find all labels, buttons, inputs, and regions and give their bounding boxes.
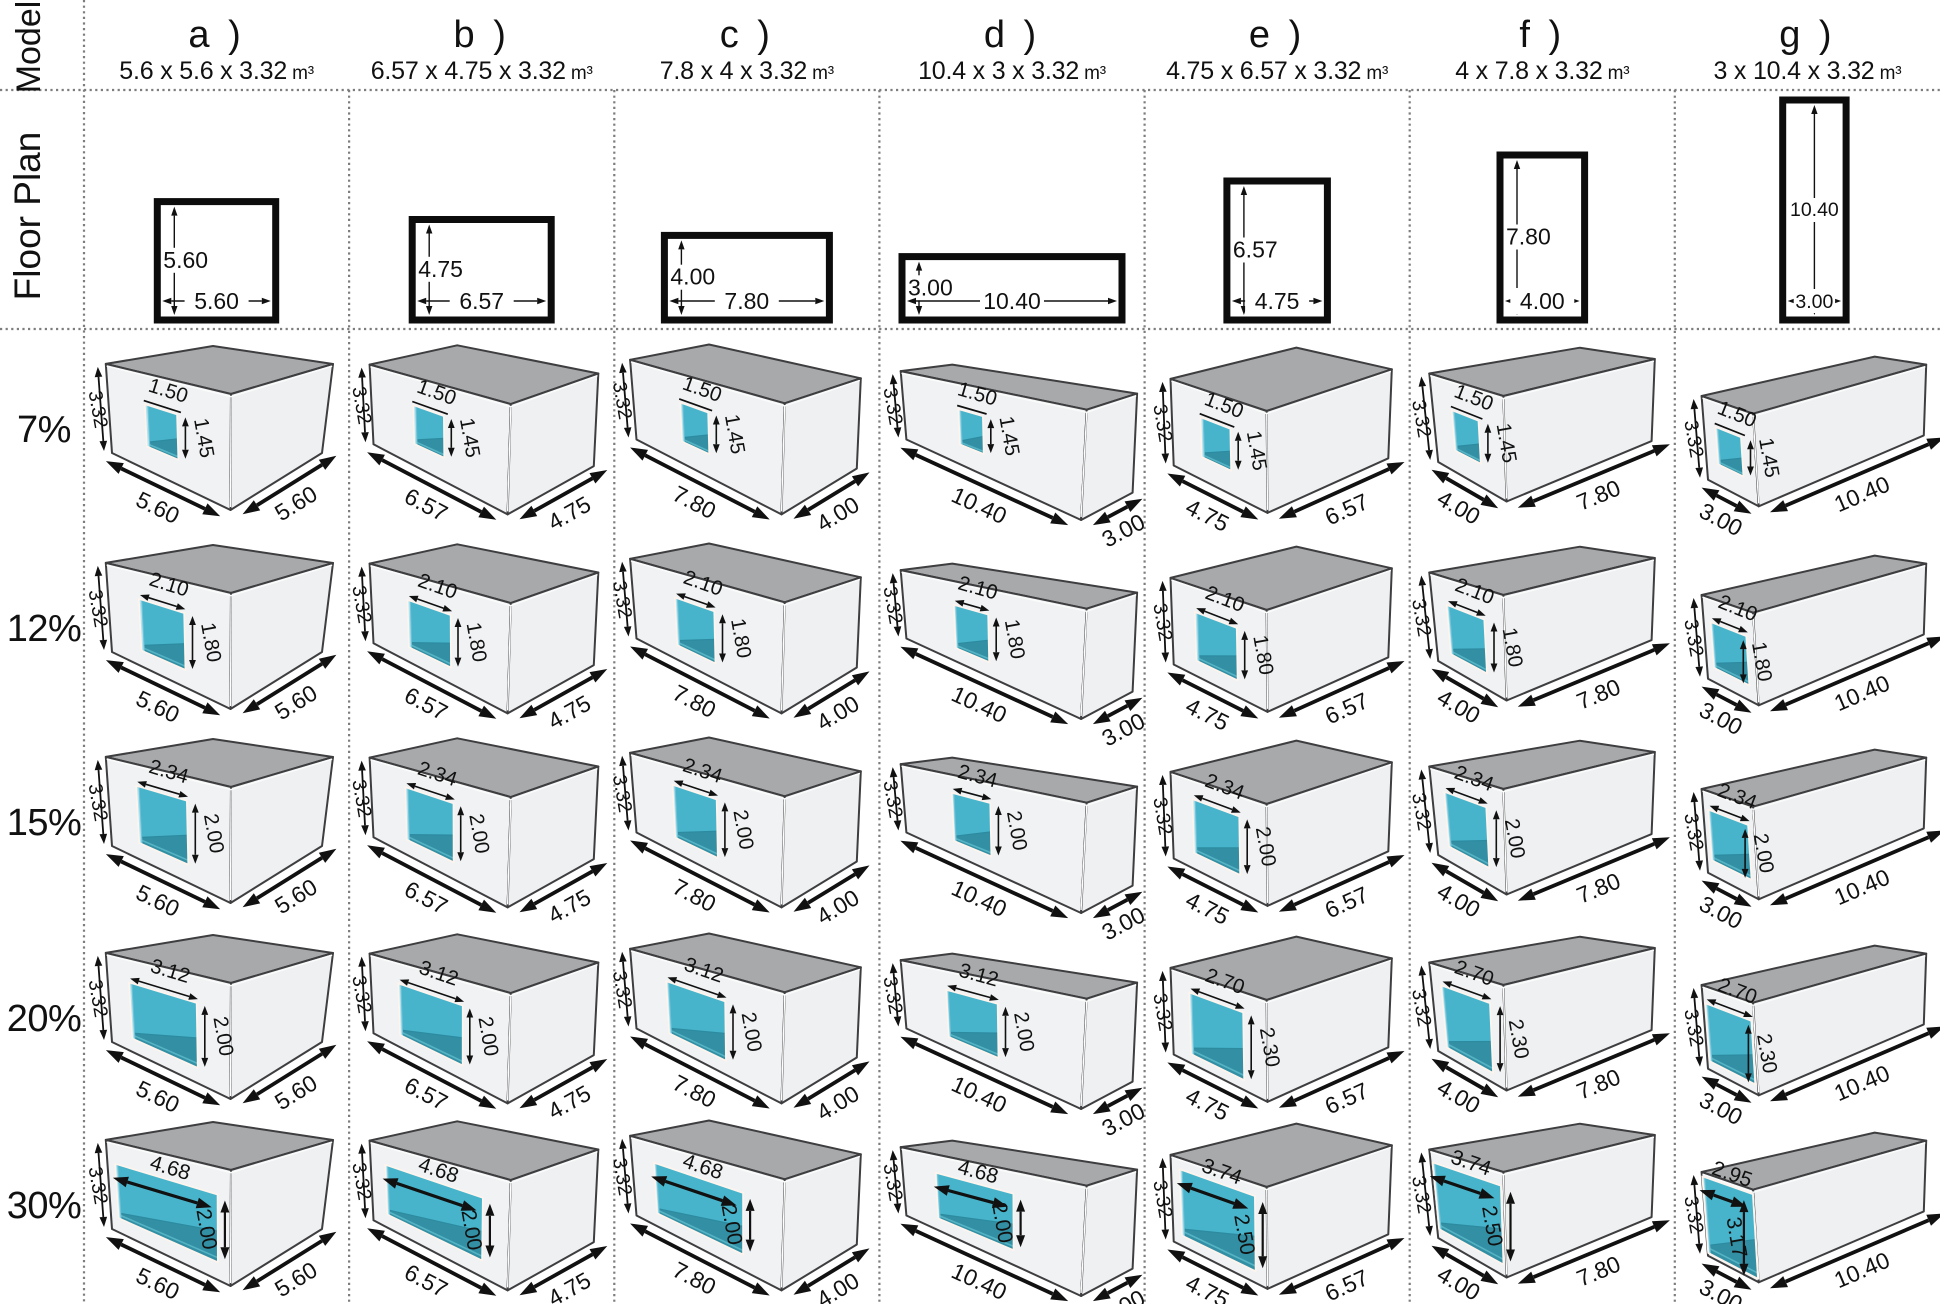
svg-text:a ): a ) <box>188 14 244 56</box>
svg-text:Model: Model <box>10 1 48 94</box>
svg-text:g ): g ) <box>1779 14 1835 56</box>
svg-text:7.80: 7.80 <box>724 288 769 314</box>
svg-text:7%: 7% <box>17 409 71 451</box>
svg-text:20%: 20% <box>7 998 82 1040</box>
svg-text:4.00: 4.00 <box>670 264 715 290</box>
svg-text:10.40: 10.40 <box>1790 199 1839 221</box>
svg-text:3 x 10.4 x 3.32 m³: 3 x 10.4 x 3.32 m³ <box>1713 57 1901 85</box>
svg-text:5.60: 5.60 <box>194 288 239 314</box>
svg-text:15%: 15% <box>7 802 82 844</box>
svg-text:4.00: 4.00 <box>1520 288 1565 314</box>
svg-text:12%: 12% <box>7 608 82 650</box>
svg-text:4.75: 4.75 <box>418 256 463 282</box>
svg-text:10.40: 10.40 <box>983 288 1041 314</box>
svg-text:5.60: 5.60 <box>163 247 208 273</box>
svg-text:6.57: 6.57 <box>1233 237 1278 263</box>
svg-text:6.57 x 4.75 x 3.32 m³: 6.57 x 4.75 x 3.32 m³ <box>371 57 593 85</box>
svg-text:d ): d ) <box>984 14 1040 56</box>
svg-text:4.75: 4.75 <box>1255 288 1300 314</box>
svg-text:f ): f ) <box>1519 14 1565 56</box>
svg-text:Floor Plan: Floor Plan <box>7 132 48 301</box>
svg-text:c ): c ) <box>720 14 774 56</box>
svg-text:5.6 x 5.6 x 3.32 m³: 5.6 x 5.6 x 3.32 m³ <box>119 57 314 85</box>
svg-text:e ): e ) <box>1249 14 1305 56</box>
svg-text:10.4 x 3 x 3.32 m³: 10.4 x 3 x 3.32 m³ <box>918 57 1106 85</box>
svg-text:6.57: 6.57 <box>459 288 504 314</box>
svg-text:30%: 30% <box>7 1185 82 1227</box>
svg-text:3.00: 3.00 <box>908 274 953 300</box>
svg-text:b ): b ) <box>454 14 510 56</box>
svg-text:3.00: 3.00 <box>1795 291 1833 313</box>
svg-text:7.80: 7.80 <box>1506 224 1551 250</box>
svg-text:4.75 x 6.57 x 3.32 m³: 4.75 x 6.57 x 3.32 m³ <box>1166 57 1388 85</box>
